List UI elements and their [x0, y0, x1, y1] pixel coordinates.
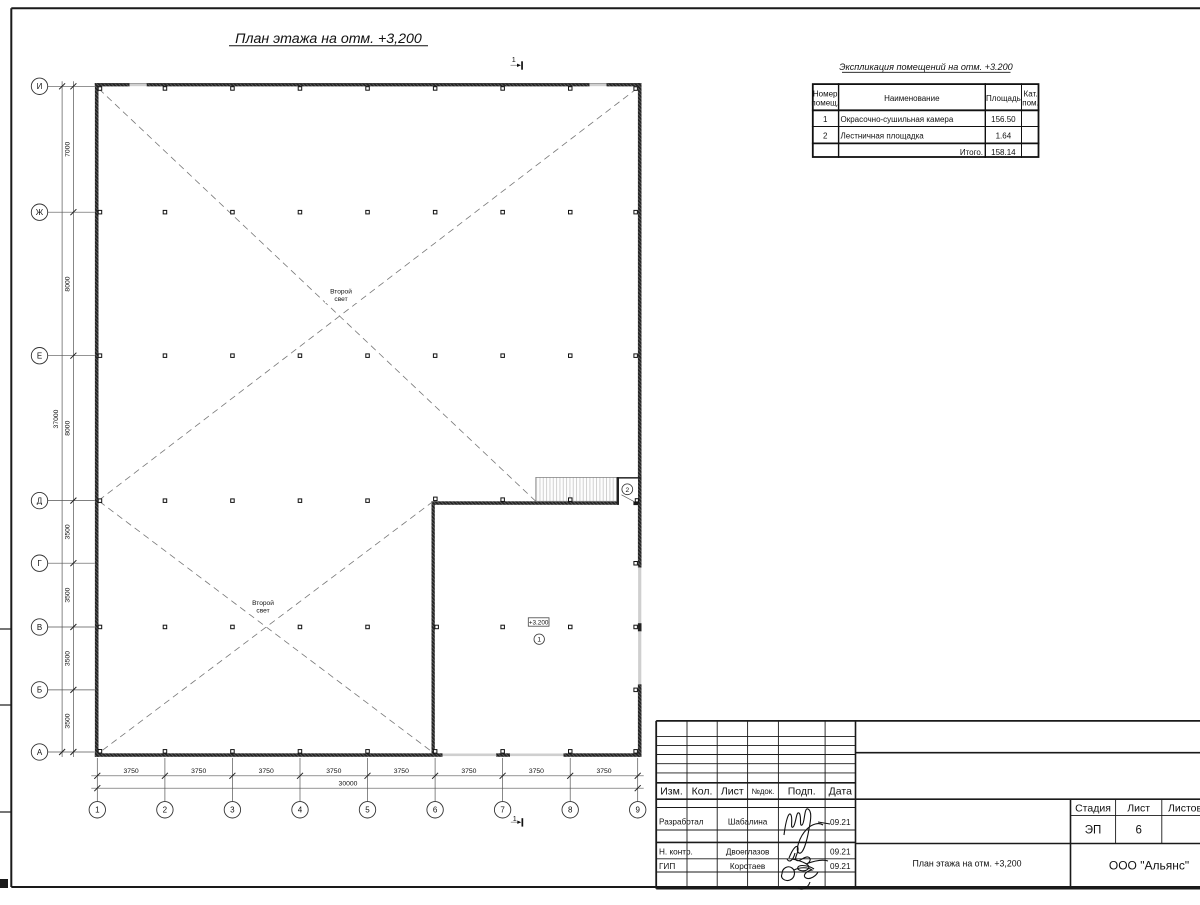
svg-text:3750: 3750: [326, 768, 341, 775]
svg-text:Изм.: Изм.: [660, 786, 683, 798]
svg-text:Лестничная площадка: Лестничная площадка: [841, 132, 925, 141]
svg-text:Лист: Лист: [1127, 803, 1150, 815]
svg-text:Итого.: Итого.: [960, 148, 983, 157]
svg-text:2: 2: [625, 487, 629, 494]
svg-text:3: 3: [230, 806, 235, 815]
svg-text:Окрасочно-сушильная камера: Окрасочно-сушильная камера: [841, 115, 954, 124]
svg-text:1: 1: [537, 637, 541, 644]
svg-text:Д: Д: [37, 496, 43, 505]
svg-text:09.21: 09.21: [830, 848, 851, 857]
svg-text:Н. контр.: Н. контр.: [659, 847, 693, 856]
svg-text:1.64: 1.64: [996, 132, 1012, 141]
svg-text:09.21: 09.21: [830, 862, 851, 871]
svg-text:2: 2: [823, 132, 828, 141]
svg-text:Экспликация помещений на отм.: Экспликация помещений на отм. +3.200: [839, 62, 1013, 72]
svg-text:1: 1: [512, 55, 516, 64]
svg-text:Листов: Листов: [1168, 803, 1200, 815]
svg-text:9: 9: [635, 806, 640, 815]
svg-text:3500: 3500: [65, 713, 72, 728]
svg-text:Подп.: Подп.: [788, 786, 816, 798]
svg-text:ГИП: ГИП: [659, 862, 675, 871]
svg-text:И: И: [37, 82, 43, 91]
svg-text:3750: 3750: [191, 768, 206, 775]
svg-text:7: 7: [500, 806, 505, 815]
svg-text:Кол.: Кол.: [692, 786, 713, 798]
svg-text:свет: свет: [256, 608, 269, 615]
svg-text:5: 5: [365, 806, 370, 815]
svg-text:Разработал: Разработал: [659, 818, 704, 827]
svg-text:План этажа на отм. +3,200: План этажа на отм. +3,200: [235, 31, 422, 47]
svg-text:3500: 3500: [65, 651, 72, 666]
svg-text:+3.200: +3.200: [529, 619, 549, 626]
svg-text:ООО "Альянс": ООО "Альянс": [1109, 859, 1189, 873]
svg-text:свет: свет: [334, 296, 347, 303]
svg-text:158.14: 158.14: [991, 148, 1016, 157]
svg-text:37000: 37000: [53, 409, 60, 428]
svg-text:1: 1: [95, 806, 100, 815]
svg-text:4: 4: [298, 806, 303, 815]
svg-text:Второй: Второй: [330, 288, 352, 296]
svg-text:пом.: пом.: [1022, 99, 1039, 108]
svg-text:План этажа на отм. +3,200: План этажа на отм. +3,200: [913, 858, 1022, 868]
svg-text:30000: 30000: [339, 781, 358, 788]
svg-text:6: 6: [433, 806, 438, 815]
svg-text:Коротаев: Коротаев: [730, 862, 765, 871]
svg-text:В: В: [37, 623, 42, 632]
svg-text:8000: 8000: [65, 276, 72, 291]
svg-text:Наименование: Наименование: [884, 94, 940, 103]
svg-text:156.50: 156.50: [991, 115, 1016, 124]
svg-text:Площадь: Площадь: [986, 94, 1021, 103]
svg-text:3750: 3750: [259, 768, 274, 775]
svg-text:Двоеглазов: Двоеглазов: [726, 847, 770, 856]
svg-text:Б: Б: [37, 686, 42, 695]
svg-text:Ж: Ж: [36, 208, 44, 217]
svg-text:3750: 3750: [461, 768, 476, 775]
svg-text:6: 6: [1135, 825, 1141, 837]
svg-text:А: А: [37, 748, 43, 757]
svg-text:Е: Е: [37, 352, 42, 361]
svg-text:3750: 3750: [529, 768, 544, 775]
svg-text:ЭП: ЭП: [1085, 825, 1102, 837]
svg-text:8000: 8000: [65, 420, 72, 435]
svg-text:Кат.: Кат.: [1024, 90, 1038, 99]
svg-text:3500: 3500: [65, 587, 72, 602]
svg-text:3500: 3500: [65, 524, 72, 539]
svg-text:3750: 3750: [124, 768, 139, 775]
svg-text:№док.: №док.: [751, 787, 774, 796]
svg-text:Шабалина: Шабалина: [728, 818, 768, 827]
svg-text:2: 2: [163, 806, 168, 815]
svg-text:Дата: Дата: [829, 786, 852, 798]
svg-text:Номер: Номер: [813, 90, 838, 99]
svg-text:3750: 3750: [394, 768, 409, 775]
svg-text:Второй: Второй: [252, 599, 274, 607]
svg-text:3750: 3750: [596, 768, 611, 775]
svg-text:8: 8: [568, 806, 573, 815]
svg-text:Лист: Лист: [721, 786, 744, 798]
svg-text:помещ.: помещ.: [811, 99, 839, 108]
svg-text:7000: 7000: [65, 142, 72, 157]
svg-text:09.21: 09.21: [830, 818, 851, 827]
svg-text:1: 1: [823, 115, 828, 124]
svg-text:Г: Г: [37, 559, 42, 568]
svg-text:Стадия: Стадия: [1075, 803, 1111, 815]
